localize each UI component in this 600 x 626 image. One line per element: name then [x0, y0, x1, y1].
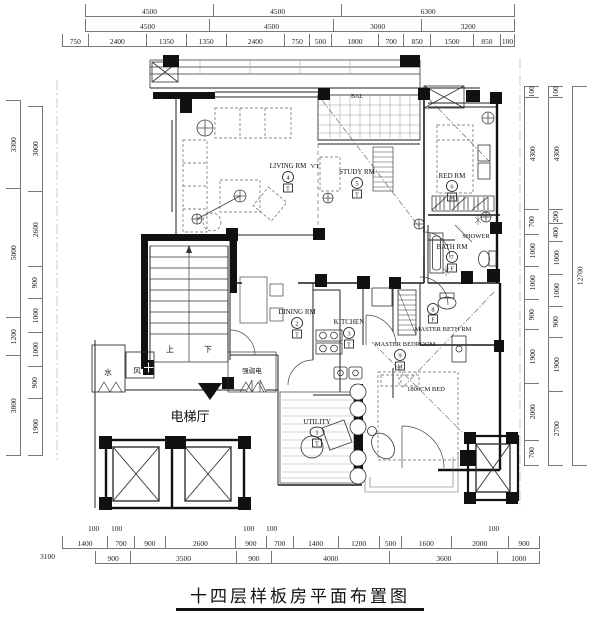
- dimension-value: 2400: [248, 38, 263, 47]
- dim-100-marker: 100: [266, 524, 277, 533]
- dimension-value: 1900: [528, 349, 536, 364]
- dim-left-outer: 3300500012003800: [6, 100, 21, 456]
- dimension-segment: 3000: [28, 106, 42, 192]
- bedroom2-tag: M: [449, 196, 455, 202]
- dim-top-row2: 4500450030003200: [85, 19, 515, 32]
- dim-top-row3: 7502400135013502400750500180070085015008…: [62, 34, 515, 47]
- dimension-segment: 700: [379, 34, 404, 46]
- dimension-segment: 750: [285, 34, 311, 46]
- vt-annotation: VT: [311, 163, 320, 170]
- water-shaft-label: 水: [104, 367, 112, 377]
- master-bedroom-tag: M: [397, 365, 403, 371]
- master-bath-label: MASTER BETH RM: [415, 326, 472, 333]
- dimension-segment: 4500: [210, 19, 334, 31]
- dimension-segment: 2000: [452, 536, 510, 548]
- dimension-value: 3200: [461, 23, 476, 32]
- dimension-segment: 700: [108, 536, 135, 548]
- dimension-segment: 1000: [28, 333, 42, 367]
- door-pivot-dot: [207, 388, 215, 396]
- bal-balcony-grid: [318, 95, 420, 140]
- dimension-value: 4000: [323, 555, 338, 564]
- dimension-value: 2600: [193, 540, 208, 549]
- dim-100-marker: 100: [88, 524, 99, 533]
- dimension-segment: 2700: [549, 392, 563, 466]
- dimension-value: 500: [315, 38, 326, 47]
- dimension-segment: 1000: [525, 267, 539, 300]
- dimension-value: 100: [502, 38, 513, 47]
- dimension-value: 1000: [31, 308, 39, 323]
- dimension-segment: 1400: [62, 536, 108, 548]
- dimension-segment: 3000: [334, 19, 422, 31]
- dimension-value: 3800: [9, 398, 17, 413]
- dim-100-marker: 100: [243, 524, 254, 533]
- dimension-segment: 1200: [339, 536, 380, 548]
- dimension-value: 1000: [31, 342, 39, 357]
- dimension-segment: 850: [474, 34, 501, 46]
- dimension-segment: 900: [28, 367, 42, 399]
- dimension-segment: 1500: [431, 34, 474, 46]
- electrical-shaft-label: 强弱电: [242, 366, 262, 375]
- dimension-value: 2600: [31, 222, 39, 237]
- dimension-segment: 3300: [6, 100, 20, 189]
- dimension-segment: 900: [237, 551, 272, 563]
- dimension-segment: 3800: [6, 356, 20, 456]
- dimension-segment: 750: [62, 34, 89, 46]
- dim-top-row1: 450045006300: [85, 4, 515, 17]
- dimension-segment: 4500: [85, 4, 214, 16]
- bedroom2-label: RED RM: [439, 172, 466, 180]
- dim-3100-label: 3100: [40, 552, 55, 561]
- dimension-value: 1900: [31, 419, 39, 434]
- dimension-segment: 1800: [332, 34, 380, 46]
- dimension-value: 900: [245, 540, 256, 549]
- dimension-value: 100: [552, 86, 560, 97]
- dimension-value: 900: [31, 277, 39, 288]
- dimension-value: 400: [552, 227, 560, 238]
- dimension-value: 1600: [419, 540, 434, 549]
- kitchen-label: KITCHEN: [334, 318, 365, 326]
- dimension-segment: 3600: [390, 551, 498, 563]
- master-bedroom-number: 9: [398, 353, 401, 360]
- dashed-guides: [318, 95, 494, 432]
- dimension-segment: 3500: [131, 551, 237, 563]
- dining-room-tag: T: [295, 333, 299, 339]
- dimension-value: 4500: [140, 23, 155, 32]
- dimension-value: 700: [386, 38, 397, 47]
- dining-room-number: 2: [295, 321, 298, 328]
- dimension-value: 4300: [552, 146, 560, 161]
- dimension-value: 1400: [78, 540, 93, 549]
- stair-down-label: 下: [204, 345, 212, 354]
- title-underline: [176, 608, 424, 611]
- elevator-hall-label: 电梯厅: [170, 409, 209, 424]
- dimension-segment: 900: [236, 536, 267, 548]
- dimension-value: 3500: [176, 555, 191, 564]
- bath-room-label: BATH RM: [437, 243, 469, 251]
- dim-right-inner: 10043007001000100090019002000700: [524, 86, 539, 466]
- dimension-value: 3000: [370, 23, 385, 32]
- room-labels: LIVING RM VT 4 T STUDY RM 5 T RED RM 6 M…: [104, 94, 490, 448]
- dimension-value: 900: [144, 540, 155, 549]
- radiator-hatch: [432, 196, 494, 211]
- dimension-value: 1400: [308, 540, 323, 549]
- floor-plan-sheet: LIVING RM VT 4 T STUDY RM 5 T RED RM 6 M…: [0, 0, 600, 626]
- dimension-value: 2000: [472, 540, 487, 549]
- dimension-segment: 1350: [147, 34, 187, 46]
- drawing-title: 十四层样板房平面布置图: [184, 582, 416, 611]
- dimension-segment: 1000: [525, 235, 539, 268]
- dimension-value: 700: [115, 540, 126, 549]
- dimension-value: 900: [518, 540, 529, 549]
- dimension-segment: 700: [525, 210, 539, 235]
- balcony-label: BAL: [351, 94, 363, 100]
- dimension-value: 2000: [528, 404, 536, 419]
- dimension-value: 750: [70, 38, 81, 47]
- dimension-value: 700: [528, 447, 536, 458]
- dimension-value: 1200: [351, 540, 366, 549]
- study-room-tag: T: [355, 193, 359, 199]
- dimension-segment: 4000: [272, 551, 390, 563]
- dimension-segment: 400: [549, 224, 563, 242]
- dimension-value: 1200: [9, 329, 17, 344]
- dimension-segment: 2400: [89, 34, 147, 46]
- dimension-segment: 1000: [28, 299, 42, 333]
- dimension-value: 3300: [9, 137, 17, 152]
- dimension-value: 750: [292, 38, 303, 47]
- utility-tag: T: [315, 442, 319, 448]
- dimension-value: 850: [411, 38, 422, 47]
- dimension-value: 4500: [264, 23, 279, 32]
- duct-shaft: [468, 436, 518, 500]
- dimension-segment: 900: [509, 536, 540, 548]
- dimension-segment: 1900: [28, 399, 42, 456]
- dimension-value: 1350: [159, 38, 174, 47]
- living-room-label: LIVING RM: [270, 162, 308, 170]
- dim-bottom-row2: 9003500900400036001000: [95, 551, 540, 564]
- dimension-value: 3000: [31, 142, 39, 157]
- utility-number: 1: [315, 430, 318, 437]
- dim-bottom-row1: 1400700900260090070014001200500160020009…: [62, 536, 540, 549]
- study-room-label: STUDY RM: [339, 168, 375, 176]
- shower-label: SHOWER: [462, 233, 490, 240]
- dimension-value: 900: [31, 377, 39, 388]
- kitchen-number: 3: [347, 331, 350, 338]
- dimension-value: 900: [108, 555, 119, 564]
- master-bedroom-label: MASTER BEDROOM: [375, 341, 436, 348]
- dimension-value: 1900: [552, 357, 560, 372]
- bedroom2-number: 6: [450, 184, 454, 191]
- dimension-segment: 1900: [525, 330, 539, 384]
- dimension-segment: 900: [525, 300, 539, 330]
- dimension-value: 1000: [552, 283, 560, 298]
- dimension-value: 1000: [528, 276, 536, 291]
- dimension-segment: 700: [525, 441, 539, 466]
- dimension-segment: 1600: [402, 536, 451, 548]
- dimension-segment: 850: [404, 34, 431, 46]
- dimension-segment: 1200: [6, 318, 20, 355]
- dimension-segment: 2600: [28, 192, 42, 267]
- living-room-tag: T: [286, 187, 290, 193]
- dim-100-marker: 100: [488, 524, 499, 533]
- dimension-segment: 1000: [549, 275, 563, 308]
- dimension-value: 200: [552, 211, 560, 222]
- kitchen-tag: T: [347, 343, 351, 349]
- study-room-number: 5: [355, 181, 358, 188]
- dimension-value: 1500: [444, 38, 459, 47]
- dimension-value: 3600: [436, 555, 451, 564]
- dimension-segment: 100: [549, 86, 563, 98]
- dimension-segment: 1000: [549, 242, 563, 275]
- master-bath-number: 8: [431, 307, 434, 314]
- dimension-segment: 1350: [187, 34, 227, 46]
- dimension-value: 4500: [270, 8, 285, 17]
- dimension-value: 1350: [199, 38, 214, 47]
- dimension-value: 12700: [576, 267, 584, 286]
- dimension-value: 2700: [552, 421, 560, 436]
- dimension-value: 900: [528, 309, 536, 320]
- balcony-railing: [150, 60, 464, 108]
- dimension-segment: 6300: [342, 4, 515, 16]
- staircase: [150, 245, 228, 362]
- dimension-value: 700: [274, 540, 285, 549]
- dimension-segment: 900: [135, 536, 166, 548]
- dimension-segment: 2000: [525, 384, 539, 441]
- dimension-value: 4500: [142, 8, 157, 17]
- dining-room-label: DINING RM: [278, 308, 316, 316]
- dimension-segment: 5000: [6, 189, 20, 318]
- dimension-value: 6300: [421, 8, 436, 17]
- dimension-value: 500: [385, 540, 396, 549]
- dimension-segment: 1900: [549, 338, 563, 392]
- dimension-value: 5000: [9, 246, 17, 261]
- dimension-value: 900: [552, 316, 560, 327]
- dimension-segment: 1000: [498, 551, 540, 563]
- dimension-segment: 100: [525, 86, 539, 98]
- dimension-segment: 4500: [214, 4, 342, 16]
- dimension-value: 4300: [528, 146, 536, 161]
- living-room-number: 4: [286, 175, 290, 182]
- dimension-segment: 4500: [85, 19, 210, 31]
- dimension-segment: 4300: [549, 98, 563, 211]
- dimension-segment: 900: [28, 267, 42, 299]
- dimension-value: 2400: [110, 38, 125, 47]
- dimension-segment: 4300: [525, 98, 539, 210]
- dimension-segment: 500: [380, 536, 403, 548]
- dimension-value: 1000: [552, 250, 560, 265]
- furniture: [183, 108, 473, 460]
- utility-label: UTILITY: [303, 418, 331, 426]
- dimension-value: 850: [481, 38, 492, 47]
- dimension-segment: 200: [549, 210, 563, 223]
- dimension-segment: 2600: [166, 536, 236, 548]
- dimension-segment: 12700: [573, 86, 587, 466]
- dimension-segment: 500: [310, 34, 331, 46]
- dimension-value: 1000: [528, 243, 536, 258]
- dimension-value: 1800: [347, 38, 362, 47]
- air-shaft-label: 风: [133, 366, 141, 375]
- bed-size-label: 1800CM BED: [407, 386, 445, 393]
- dimension-segment: 100: [501, 34, 515, 46]
- elevator-shafts: [106, 440, 244, 508]
- dim-100-marker: 100: [111, 524, 122, 533]
- stair-up-label: 上: [166, 345, 174, 354]
- dimension-segment: 1400: [294, 536, 339, 548]
- dimension-segment: 3200: [422, 19, 515, 31]
- dimension-segment: 700: [267, 536, 294, 548]
- dimension-segment: 2400: [227, 34, 285, 46]
- dimension-segment: 900: [549, 307, 563, 337]
- utility-room: [280, 392, 354, 483]
- dim-left-inner: 30002600900100010009001900: [28, 106, 43, 456]
- dimension-value: 700: [528, 216, 536, 227]
- dimension-value: 900: [248, 555, 259, 564]
- dimension-value: 100: [528, 86, 536, 97]
- dimension-segment: 900: [95, 551, 131, 563]
- dim-right-outer: 12700: [572, 86, 587, 466]
- dim-right-mid: 10043002004001000100090019002700: [548, 86, 563, 466]
- dimension-value: 1000: [511, 555, 526, 564]
- bath-room-number: 7: [450, 255, 454, 262]
